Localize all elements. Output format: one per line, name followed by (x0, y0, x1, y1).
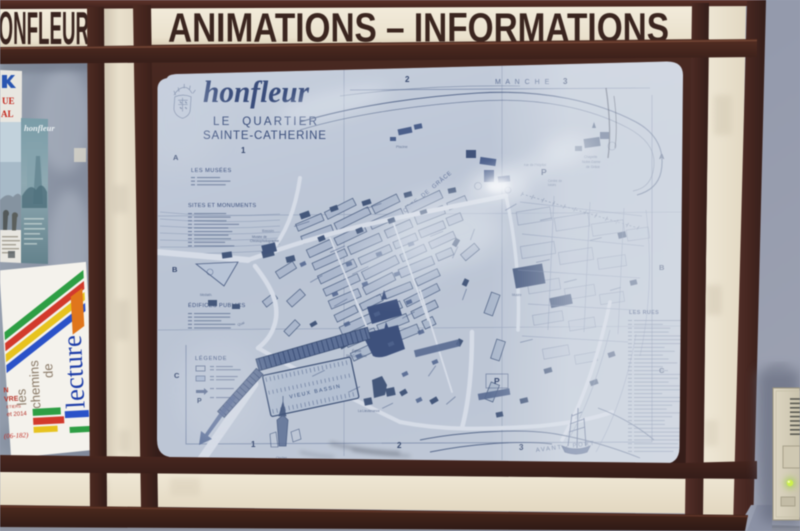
svg-text:UE: UE (2, 96, 15, 106)
svg-text:(06-182): (06-182) (4, 431, 30, 440)
svg-text:de: de (40, 363, 56, 378)
svg-text:et 2014: et 2014 (7, 411, 28, 418)
svg-text:VRE: VRE (4, 396, 19, 404)
svg-text:N: N (3, 387, 8, 394)
svg-text:AL: AL (1, 109, 14, 119)
svg-text:ETIERS: ETIERS (6, 403, 21, 409)
svg-text:honfleur: honfleur (24, 123, 55, 133)
svg-text:lecture: lecture (57, 334, 91, 409)
